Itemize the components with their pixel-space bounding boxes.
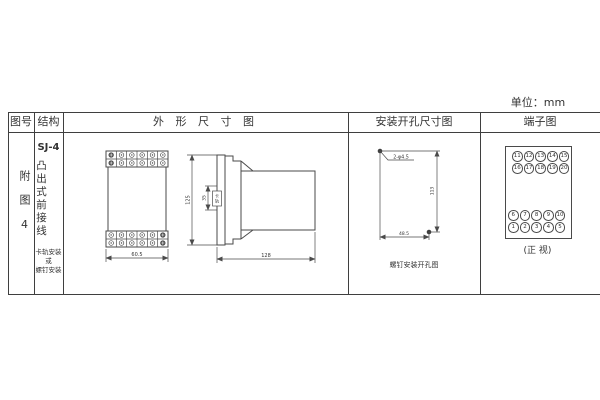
mounting-note-line3: 螺钉安装 [34,266,63,275]
model-label: SJ-4 [34,142,63,153]
terminal-15: 15 [559,151,570,162]
header-structure: 结构 [34,112,63,132]
col-divider-4 [480,112,481,294]
header-figure-no: 图号 [8,112,34,132]
terminal-20: 20 [559,163,570,174]
header-mounting-drawing: 安装开孔尺寸图 [348,112,480,132]
holes-spec-label: 2-φ4.5 [393,155,409,161]
hole-horizontal-dim-label: 48.5 [399,231,409,237]
hole-vertical-dim-label: 113 [430,187,436,196]
depth-dim-label: 128 [261,253,271,259]
overall-height-dim-label: 125 [186,195,192,205]
terminal-9: 9 [543,210,554,221]
terminal-row: 12345 [508,222,565,233]
terminal-13: 13 [535,151,546,162]
terminal-6: 6 [508,210,519,221]
terminal-7: 7 [520,210,531,221]
terminal-19: 19 [547,163,558,174]
terminal-3: 3 [531,222,542,233]
table-bottom-border [8,294,600,295]
rail-dim-label: 35 [202,195,208,201]
terminal-1: 1 [508,222,519,233]
terminal-diagram-caption: (正 视) [505,243,570,256]
header-outline-drawing: 外 形 尺 寸 图 [63,112,348,132]
structure-type-label: 凸出式前接线 [34,160,63,238]
mounting-holes-drawing: 113 48.5 2-φ4.5 [355,143,467,251]
mounting-note-line1: 卡轨安装 [34,248,63,257]
technical-drawing-page: { "unit_label": "单位：mm", "table": { "hea… [0,0,600,400]
table-left-border [8,112,9,294]
header-terminal-diagram: 端子图 [480,112,600,132]
mounting-drawing-caption: 螺钉安装开孔图 [348,260,480,270]
terminal-row: 1112131415 [512,151,569,162]
terminal-row: 1617181920 [512,163,569,174]
terminal-group-top: 11121314151617181920 [512,151,569,174]
terminal-8: 8 [531,210,542,221]
mounting-note-line2: 或 [34,257,63,266]
terminal-17: 17 [524,163,535,174]
terminal-18: 18 [535,163,546,174]
col-divider-2 [63,112,64,294]
terminal-12: 12 [524,151,535,162]
terminal-5: 5 [555,222,566,233]
terminal-group-bottom: 67891012345 [508,210,565,233]
terminal-4: 4 [543,222,554,233]
terminal-row: 678910 [508,210,565,221]
front-view-drawing: 60.5 [101,145,173,270]
terminal-11: 11 [512,151,523,162]
terminal-2: 2 [520,222,531,233]
relay-body-front [108,167,166,231]
front-width-dim-label: 60.5 [131,252,142,258]
terminal-diagram-box: 11121314151617181920 67891012345 [505,146,572,239]
terminal-10: 10 [555,210,566,221]
relay-body-profile [241,171,315,230]
unit-label: 单位：mm [495,94,581,110]
table-header-border [8,132,600,133]
terminal-16: 16 [512,163,523,174]
mounting-note: 卡轨安装 或 螺钉安装 [34,248,63,275]
terminal-14: 14 [547,151,558,162]
side-view-drawing: 125 35 卡轨 128 [183,146,323,268]
